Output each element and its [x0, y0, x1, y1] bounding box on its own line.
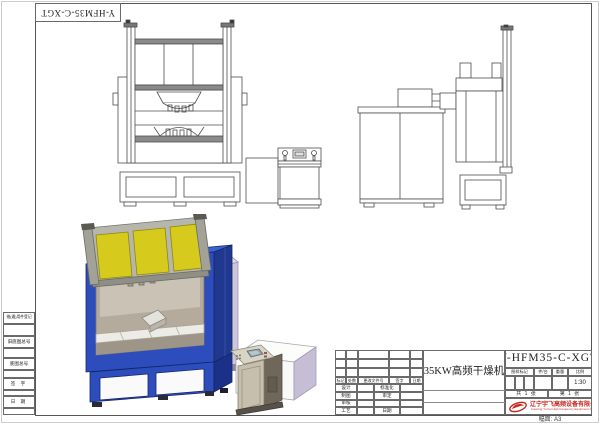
- guard-panel: [96, 232, 132, 279]
- role-label: 审核: [335, 400, 357, 407]
- margin-row-label: 日 期: [3, 396, 35, 408]
- role-sign: [357, 407, 374, 415]
- role-label: 标准化: [374, 384, 400, 392]
- role-label: 制图: [335, 392, 357, 400]
- mark-sub-cell: [515, 376, 524, 390]
- scale-value: 1:30: [568, 376, 592, 390]
- machine-side-face: [214, 245, 232, 362]
- margin-row-empty: [3, 348, 35, 358]
- revision-table: [335, 350, 423, 377]
- control-console-front-view-drawing: [244, 145, 324, 209]
- guard-panel: [133, 228, 169, 275]
- role-sign: [357, 392, 374, 400]
- role-sign: [400, 407, 423, 415]
- role-sign: [400, 384, 423, 392]
- drawing-sheet: Y-HFM35-C-XGT 借(通)用件登记 旧底图总号 底图总号 签 字 日 …: [0, 0, 600, 424]
- role-label: 审定: [374, 392, 400, 400]
- revision-col-header: 标记: [335, 377, 346, 384]
- role-label: 日期: [374, 407, 400, 415]
- company-cell: 辽宁宇飞高频设备有限公司 Liaoning Yu Fei High Freque…: [505, 398, 592, 415]
- qty-value: [534, 376, 552, 390]
- role-sign: [400, 392, 423, 400]
- company-name-en: Liaoning Yu Fei High Frequency Equipment…: [531, 408, 592, 411]
- role-label: [374, 400, 400, 407]
- role-label: 设计: [335, 384, 357, 392]
- side-view-drawing: [440, 25, 550, 210]
- role-label: 工艺: [335, 407, 357, 415]
- drawing-number: Y-HFM35-C-XGT: [505, 350, 592, 368]
- revision-col-header: 签字: [389, 377, 410, 384]
- company-logo-icon: [508, 400, 528, 414]
- role-sign: [400, 400, 423, 407]
- role-sign: [357, 384, 374, 392]
- margin-row-label: 旧底图总号: [3, 336, 35, 348]
- revision-col-header: 处数: [346, 377, 358, 384]
- mark-sub-cell: [505, 376, 515, 390]
- margin-row-label: 底图总号: [3, 358, 35, 370]
- front-view-drawing: [100, 15, 260, 210]
- company-text-wrap: 辽宁宇飞高频设备有限公司 Liaoning Yu Fei High Freque…: [530, 402, 592, 411]
- role-sign: [357, 400, 374, 407]
- mark-header: 图样标记: [505, 368, 534, 376]
- revision-col-header: 日期: [410, 377, 423, 384]
- margin-row-empty: [3, 324, 35, 336]
- qty-header: 件/台: [534, 368, 552, 376]
- weight-value: [552, 376, 568, 390]
- sheets-total: 共 1 张: [505, 390, 548, 398]
- margin-row-empty: [3, 408, 35, 415]
- part-name-divider: [423, 390, 505, 391]
- scale-header: 比例: [568, 368, 592, 376]
- margin-row-empty: [3, 370, 35, 378]
- weight-header: 重量: [552, 368, 568, 376]
- revision-col-header: 更改文件号: [358, 377, 389, 384]
- sheet-index: 第 1 张: [548, 390, 592, 398]
- part-name: 35KW高频干燥机: [423, 350, 505, 415]
- paper-size-label: 幅面: A3: [520, 415, 580, 424]
- margin-row-label: 借(通)用件登记: [3, 312, 35, 324]
- isometric-view-drawing: [62, 214, 324, 420]
- mark-sub-cell: [524, 376, 534, 390]
- margin-row-label: 签 字: [3, 378, 35, 390]
- part-name-divider: [423, 402, 505, 403]
